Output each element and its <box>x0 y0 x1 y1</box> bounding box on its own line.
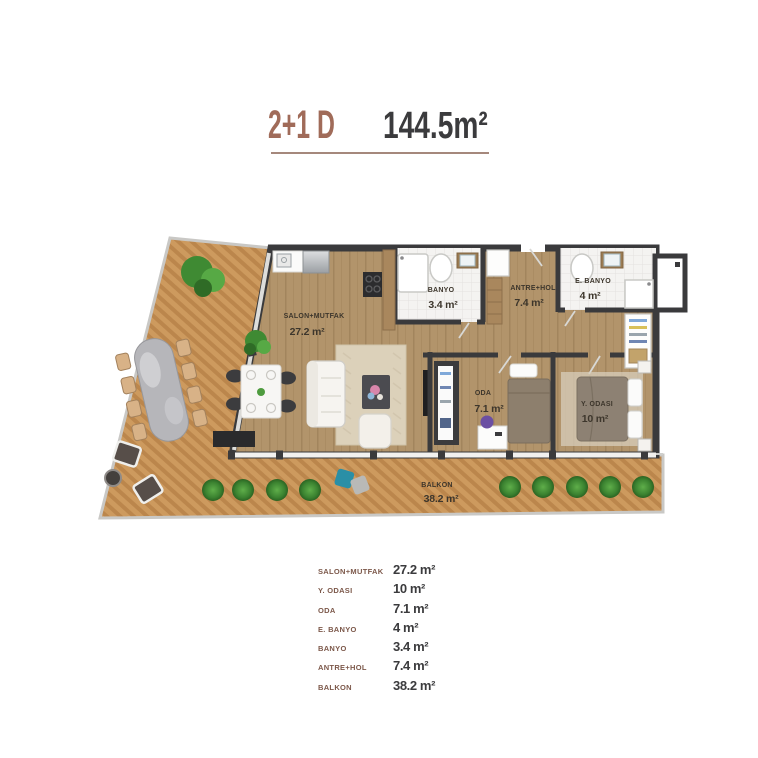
room-area-ebanyo: 4 m² <box>580 290 601 302</box>
legend-value: 7.4 m² <box>393 658 428 673</box>
room-area-antre: 7.4 m² <box>514 297 544 309</box>
legend-value: 38.2 m² <box>393 678 435 693</box>
title-underline <box>271 152 489 154</box>
room-label-ebanyo: E. BANYO <box>575 278 611 285</box>
unit-total-area: 144.5m² <box>383 105 488 148</box>
floorplan: SALON+MUTFAK 27.2 m² BANYO 3.4 m² ANTRE+… <box>93 228 693 522</box>
tv-panel <box>423 370 428 416</box>
nightstand <box>638 439 651 451</box>
room-area-balkon: 38.2 m² <box>424 493 459 505</box>
coffee-table <box>362 375 390 409</box>
legend-row: BALKON 38.2 m² <box>318 678 478 697</box>
sink-oval <box>430 254 452 282</box>
bed-blanket <box>577 377 628 441</box>
room-label-yodasi: Y. ODASI <box>581 401 613 408</box>
legend-row: ANTRE+HOL 7.4 m² <box>318 658 478 677</box>
legend-label: ANTRE+HOL <box>318 663 393 672</box>
entrance-door-gap <box>521 241 545 252</box>
tall-cabinet <box>383 250 395 330</box>
room-area-banyo: 3.4 m² <box>428 299 458 311</box>
legend-value: 7.1 m² <box>393 601 428 616</box>
armchair <box>359 414 391 448</box>
legend-value: 3.4 m² <box>393 639 428 654</box>
legend-row: Y. ODASI 10 m² <box>318 581 478 600</box>
legend-value: 4 m² <box>393 620 418 635</box>
legend-label: Y. ODASI <box>318 586 393 595</box>
nightstand <box>638 361 651 373</box>
room-area-yodasi: 10 m² <box>582 413 609 425</box>
room-label-balkon: BALKON <box>421 482 452 489</box>
room-label-antre: ANTRE+HOL <box>510 285 556 292</box>
legend-value: 10 m² <box>393 581 425 596</box>
legend-label: BALKON <box>318 683 393 692</box>
legend-row: SALON+MUTFAK 27.2 m² <box>318 562 478 581</box>
floorplan-page: { "title": { "unit_type": "2+1 D", "tota… <box>0 0 758 758</box>
cooktop <box>363 272 382 297</box>
legend-table: SALON+MUTFAK 27.2 m² Y. ODASI 10 m² ODA … <box>318 562 478 697</box>
legend-label: E. BANYO <box>318 625 393 634</box>
sofa <box>307 361 345 427</box>
legend-label: ODA <box>318 606 393 615</box>
oda-wardrobe <box>434 361 459 445</box>
unit-type-title: 2+1 D <box>268 103 335 148</box>
room-area-salon: 27.2 m² <box>290 326 325 338</box>
legend-label: BANYO <box>318 644 393 653</box>
fridge <box>303 251 329 273</box>
room-label-banyo: BANYO <box>428 287 455 294</box>
legend-row: E. BANYO 4 m² <box>318 620 478 639</box>
legend-row: ODA 7.1 m² <box>318 601 478 620</box>
legend-label: SALON+MUTFAK <box>318 567 393 576</box>
corridor-closet <box>625 314 651 368</box>
room-label-oda: ODA <box>475 390 491 397</box>
legend-value: 27.2 m² <box>393 562 435 577</box>
room-label-salon: SALON+MUTFAK <box>284 313 345 320</box>
legend-row: BANYO 3.4 m² <box>318 639 478 658</box>
utility-shaft <box>655 256 685 310</box>
pillow <box>628 411 642 438</box>
room-area-oda: 7.1 m² <box>474 403 504 415</box>
media-bench <box>213 431 255 447</box>
pillow <box>628 379 642 406</box>
kitchen-sink <box>277 254 291 267</box>
